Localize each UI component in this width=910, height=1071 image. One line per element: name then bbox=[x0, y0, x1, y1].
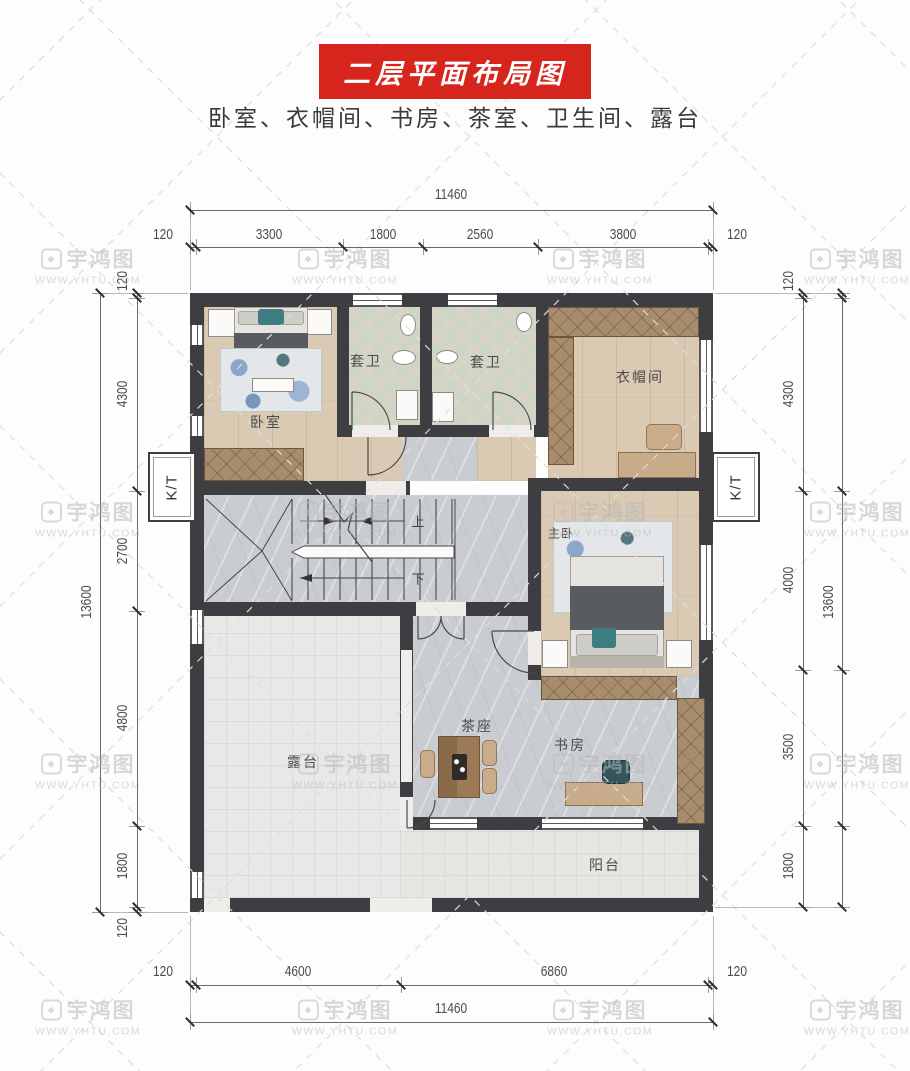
room-label-master-bedroom: 主卧 bbox=[548, 525, 574, 542]
floor-vestibule bbox=[337, 437, 410, 481]
watermark-url: WWW.YHTU.COM bbox=[292, 275, 398, 287]
toilet bbox=[516, 312, 532, 332]
brand-logo-icon: ◆ bbox=[297, 248, 318, 269]
brand-logo-icon: ◆ bbox=[40, 501, 61, 522]
brand-logo-icon: ◆ bbox=[40, 248, 61, 269]
stairs-up-label: 上 bbox=[411, 512, 424, 531]
wall-opening bbox=[204, 898, 230, 912]
nightstand bbox=[666, 640, 692, 668]
dressing-desk bbox=[618, 452, 696, 478]
watermark-brand: 宇鸿图 bbox=[835, 749, 904, 779]
watermark: ◆宇鸿图WWW.YHTU.COM bbox=[35, 995, 141, 1038]
brand-logo-icon: ◆ bbox=[552, 999, 573, 1020]
dim-right-seg: 3500 bbox=[780, 734, 797, 761]
room-label-balcony: 阳台 bbox=[589, 855, 621, 875]
dim-right-overall: 13600 bbox=[820, 585, 837, 618]
dim-top-seg: 120 bbox=[153, 226, 173, 243]
watermark-url: WWW.YHTU.COM bbox=[35, 780, 141, 792]
master-closet bbox=[541, 676, 677, 700]
nightstand bbox=[208, 309, 236, 337]
watermark: ◆宇鸿图WWW.YHTU.COM bbox=[804, 497, 910, 540]
brand-logo-icon: ◆ bbox=[40, 999, 61, 1020]
wall-opening bbox=[366, 481, 406, 495]
wall-opening bbox=[401, 650, 412, 782]
tea-chair bbox=[420, 750, 435, 778]
wall bbox=[190, 293, 204, 912]
watermark-brand: 宇鸿图 bbox=[578, 995, 647, 1025]
dim-top-seg: 3300 bbox=[256, 226, 283, 243]
wall-opening bbox=[398, 898, 432, 912]
study-chair bbox=[602, 760, 630, 784]
brand-logo-icon: ◆ bbox=[40, 753, 61, 774]
floor-balcony bbox=[400, 830, 699, 898]
dim-left-seg: 4300 bbox=[114, 381, 131, 408]
dim-top-seg: 1800 bbox=[370, 226, 397, 243]
window bbox=[430, 817, 477, 830]
vanity bbox=[432, 392, 454, 422]
watermark-brand: 宇鸿图 bbox=[835, 244, 904, 274]
watermark-brand: 宇鸿图 bbox=[323, 244, 392, 274]
wall-opening bbox=[489, 425, 534, 437]
dim-top-seg: 3800 bbox=[610, 226, 637, 243]
watermark: ◆宇鸿图WWW.YHTU.COM bbox=[35, 749, 141, 792]
watermark-brand: 宇鸿图 bbox=[323, 995, 392, 1025]
window bbox=[190, 610, 204, 644]
window bbox=[542, 817, 643, 830]
dim-top-seg: 120 bbox=[727, 226, 747, 243]
dressing-chair bbox=[646, 424, 682, 450]
dim-left-seg: 1800 bbox=[114, 853, 131, 880]
extension-line bbox=[190, 916, 191, 1026]
room-label-study: 书房 bbox=[554, 735, 586, 755]
wall bbox=[337, 307, 349, 437]
tea-chair bbox=[482, 740, 497, 766]
dim-line-top-overall bbox=[190, 210, 713, 211]
dim-left-seg: 120 bbox=[114, 918, 131, 938]
dim-right-seg: 4000 bbox=[780, 567, 797, 594]
window bbox=[699, 340, 713, 432]
master-pillows bbox=[576, 634, 658, 656]
window bbox=[190, 872, 204, 898]
floor-plan-page: 二层平面布局图 卧室、衣帽间、书房、茶室、卫生间、露台 bbox=[0, 0, 910, 1071]
bookshelf bbox=[677, 698, 705, 824]
bedroom-wardrobe bbox=[204, 448, 304, 481]
tea-chair bbox=[482, 768, 497, 794]
watermark-brand: 宇鸿图 bbox=[66, 244, 135, 274]
page-subtitle: 卧室、衣帽间、书房、茶室、卫生间、露台 bbox=[208, 99, 702, 133]
window bbox=[353, 293, 402, 307]
watermark-brand: 宇鸿图 bbox=[835, 995, 904, 1025]
dim-bottom-seg: 120 bbox=[153, 963, 173, 980]
watermark-brand: 宇鸿图 bbox=[66, 995, 135, 1025]
dim-line-right-segments bbox=[803, 293, 804, 907]
watermark-url: WWW.YHTU.COM bbox=[804, 1026, 910, 1038]
sink bbox=[392, 350, 416, 365]
dim-right-seg: 120 bbox=[780, 271, 797, 291]
watermark-url: WWW.YHTU.COM bbox=[547, 275, 653, 287]
watermark-brand: 宇鸿图 bbox=[835, 497, 904, 527]
extension-line bbox=[715, 293, 846, 294]
watermark: ◆宇鸿图WWW.YHTU.COM bbox=[804, 749, 910, 792]
floor-vestibule-2 bbox=[477, 437, 536, 481]
dim-bottom-seg: 4600 bbox=[285, 963, 312, 980]
dim-line-left-overall bbox=[100, 293, 101, 912]
floor-stair-hall bbox=[204, 495, 528, 602]
wall bbox=[528, 664, 541, 680]
bench bbox=[252, 378, 294, 392]
room-label-ensuite-bath-1: 套卫 bbox=[350, 351, 382, 371]
kt-marker-right: K/T bbox=[712, 452, 760, 522]
kt-marker-left: K/T bbox=[148, 452, 196, 522]
wall bbox=[190, 898, 713, 912]
wall bbox=[536, 307, 548, 437]
dim-line-bottom-overall bbox=[190, 1022, 713, 1023]
brand-logo-icon: ◆ bbox=[552, 248, 573, 269]
dim-bottom-seg: 120 bbox=[727, 963, 747, 980]
dim-right-seg: 4300 bbox=[780, 381, 797, 408]
nightstand bbox=[542, 640, 568, 668]
room-label-terrace: 露台 bbox=[287, 752, 319, 772]
stairs-down-label: 下 bbox=[411, 569, 424, 588]
window bbox=[190, 416, 204, 436]
room-label-bedroom: 卧室 bbox=[250, 412, 282, 432]
watermark: ◆宇鸿图WWW.YHTU.COM bbox=[547, 244, 653, 287]
watermark: ◆宇鸿图WWW.YHTU.COM bbox=[804, 244, 910, 287]
watermark-url: WWW.YHTU.COM bbox=[804, 528, 910, 540]
watermark-url: WWW.YHTU.COM bbox=[804, 275, 910, 287]
room-label-tea-seat: 茶座 bbox=[461, 716, 493, 736]
wall bbox=[204, 602, 541, 616]
page-title-badge: 二层平面布局图 bbox=[319, 44, 591, 99]
watermark-url: WWW.YHTU.COM bbox=[35, 1026, 141, 1038]
tea-tray bbox=[452, 754, 467, 780]
extension-line bbox=[715, 907, 846, 908]
dim-line-bottom-segments bbox=[190, 985, 713, 986]
dim-left-seg: 4800 bbox=[114, 705, 131, 732]
dim-line-right-overall bbox=[842, 293, 843, 907]
brand-logo-icon: ◆ bbox=[297, 999, 318, 1020]
watermark: ◆宇鸿图WWW.YHTU.COM bbox=[292, 995, 398, 1038]
window bbox=[190, 325, 204, 345]
cloakroom-wardrobe-left bbox=[548, 337, 574, 465]
brand-logo-icon: ◆ bbox=[809, 248, 830, 269]
master-duvet bbox=[570, 586, 664, 630]
watermark-url: WWW.YHTU.COM bbox=[804, 780, 910, 792]
extension-line bbox=[713, 916, 714, 1026]
room-label-ensuite-bath-2: 套卫 bbox=[470, 352, 502, 372]
master-headboard bbox=[570, 656, 664, 668]
wall bbox=[420, 307, 432, 425]
wall-opening bbox=[400, 797, 413, 830]
wall-opening bbox=[528, 631, 541, 665]
dim-left-seg: 120 bbox=[114, 271, 131, 291]
sink bbox=[436, 350, 458, 364]
brand-logo-icon: ◆ bbox=[809, 753, 830, 774]
dim-right-seg: 1800 bbox=[780, 853, 797, 880]
floor-corridor bbox=[402, 437, 477, 481]
dim-left-overall: 13600 bbox=[78, 585, 95, 618]
study-desk bbox=[565, 782, 643, 806]
window bbox=[448, 293, 497, 307]
dim-bottom-overall: 11460 bbox=[435, 1000, 467, 1017]
watermark: ◆宇鸿图WWW.YHTU.COM bbox=[804, 995, 910, 1038]
dim-line-left-segments bbox=[137, 293, 138, 912]
room-label-cloakroom: 衣帽间 bbox=[616, 367, 664, 387]
wall bbox=[528, 491, 541, 634]
watermark-brand: 宇鸿图 bbox=[578, 244, 647, 274]
dim-bottom-seg: 6860 bbox=[541, 963, 568, 980]
toilet bbox=[400, 314, 416, 336]
wall bbox=[528, 478, 713, 491]
dim-top-seg: 2560 bbox=[467, 226, 494, 243]
vanity bbox=[396, 390, 418, 420]
wall-opening bbox=[352, 425, 398, 437]
master-accent-pillow bbox=[592, 628, 616, 648]
brand-logo-icon: ◆ bbox=[809, 501, 830, 522]
wall-opening bbox=[416, 602, 466, 616]
dim-line-top-segments bbox=[190, 247, 713, 248]
watermark: ◆宇鸿图WWW.YHTU.COM bbox=[547, 995, 653, 1038]
dim-left-seg: 2700 bbox=[114, 538, 131, 565]
watermark: ◆宇鸿图WWW.YHTU.COM bbox=[35, 497, 141, 540]
wall-opening bbox=[370, 898, 398, 912]
brand-logo-icon: ◆ bbox=[809, 999, 830, 1020]
cloakroom-wardrobe-top bbox=[548, 307, 699, 337]
nightstand bbox=[306, 309, 332, 335]
watermark-url: WWW.YHTU.COM bbox=[292, 1026, 398, 1038]
bed-accent-pillow bbox=[258, 309, 284, 325]
dim-top-overall: 11460 bbox=[435, 186, 467, 203]
window bbox=[699, 545, 713, 640]
watermark-url: WWW.YHTU.COM bbox=[547, 1026, 653, 1038]
